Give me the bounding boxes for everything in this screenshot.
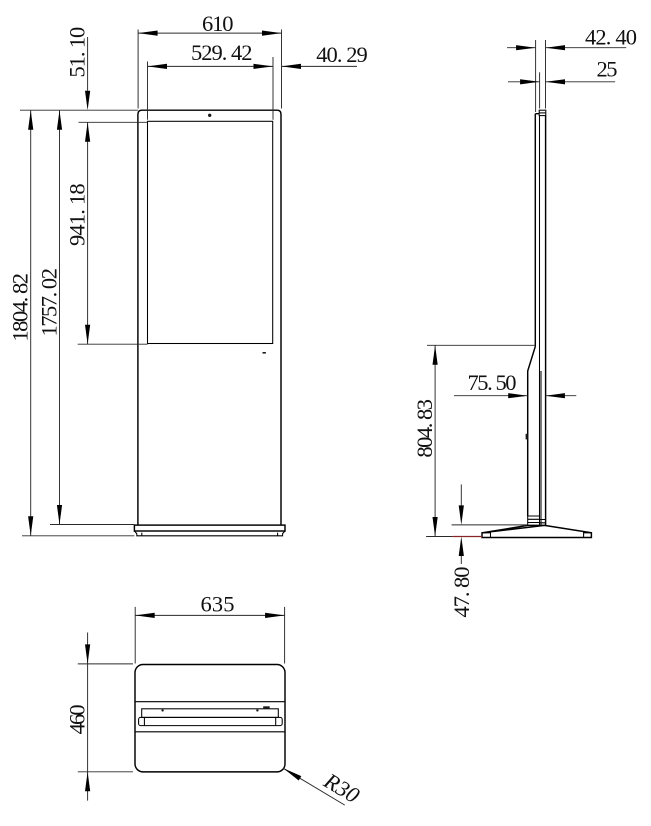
svg-text:804. 83: 804. 83 [412,399,437,458]
svg-text:51. 10: 51. 10 [65,27,90,78]
svg-text:460: 460 [65,704,90,734]
svg-text:47. 80: 47. 80 [449,567,474,618]
svg-text:1757. 02: 1757. 02 [37,268,62,337]
svg-text:941. 18: 941. 18 [65,183,90,246]
svg-text:25: 25 [597,56,618,81]
svg-text:42. 40: 42. 40 [585,25,637,50]
svg-text:529. 42: 529. 42 [191,40,253,65]
svg-text:1804. 82: 1804. 82 [8,273,33,342]
svg-text:635: 635 [201,592,235,617]
svg-text:610: 610 [202,11,234,36]
svg-text:75. 50: 75. 50 [468,370,517,395]
svg-text:40. 29: 40. 29 [316,42,368,67]
